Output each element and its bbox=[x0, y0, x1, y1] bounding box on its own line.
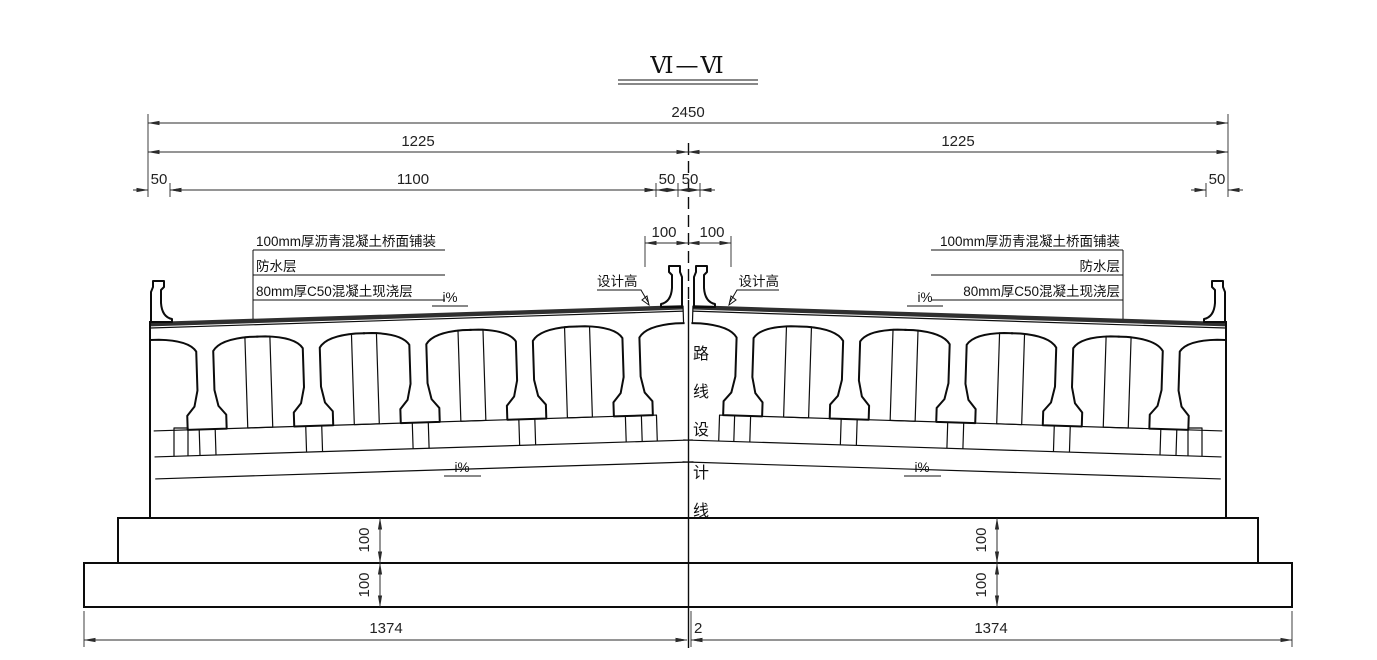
centerline-char-3: 设 bbox=[693, 421, 709, 439]
dim-median-right: 50 bbox=[682, 171, 699, 188]
label-waterproof-right: 防水层 bbox=[1080, 259, 1121, 274]
dim-step-upper-left: 100 bbox=[356, 527, 373, 552]
dim-median-left: 50 bbox=[659, 171, 676, 188]
dim-total-width: 2450 bbox=[671, 104, 704, 121]
dim-center-right: 100 bbox=[699, 224, 724, 241]
annotation-block-right: 100mm厚沥青混凝土桥面铺装 防水层 80mm厚C50混凝土现浇层 i% 设计… bbox=[729, 234, 1123, 476]
label-cap-slope-left: i% bbox=[454, 460, 469, 475]
label-cast-layer-left: 80mm厚C50混凝土现浇层 bbox=[256, 284, 413, 299]
annotation-block-left: 100mm厚沥青混凝土桥面铺装 防水层 80mm厚C50混凝土现浇层 i% 设计… bbox=[253, 234, 649, 476]
dim-footing-right: 1374 bbox=[974, 620, 1007, 637]
title-double-underline bbox=[618, 80, 758, 84]
dim-center-left: 100 bbox=[651, 224, 676, 241]
dim-footing-left: 1374 bbox=[369, 620, 402, 637]
label-waterproof-left: 防水层 bbox=[256, 259, 297, 274]
label-deck-slope-right: i% bbox=[917, 290, 932, 305]
label-design-height-left: 设计高 bbox=[597, 273, 638, 289]
dim-edge-left: 50 bbox=[151, 171, 168, 188]
dim-edge-right: 50 bbox=[1209, 171, 1226, 188]
open-arrow-right bbox=[729, 296, 736, 305]
label-pavement-left: 100mm厚沥青混凝土桥面铺装 bbox=[256, 234, 436, 249]
label-cap-slope-right: i% bbox=[914, 460, 929, 475]
centerline-char-4: 计 bbox=[693, 464, 709, 482]
design-height-leader-left bbox=[597, 290, 648, 302]
dim-step-lower-right: 100 bbox=[973, 572, 990, 597]
open-arrow-left bbox=[642, 296, 649, 305]
median-left-parapet bbox=[661, 266, 682, 307]
centerline-char-2: 线 bbox=[693, 383, 709, 401]
centerline-char-1: 路 bbox=[693, 345, 709, 363]
median-right-parapet bbox=[694, 266, 715, 307]
dim-half-left: 1225 bbox=[401, 133, 434, 150]
centerline-char-5: 线 bbox=[693, 502, 709, 520]
label-pavement-right: 100mm厚沥青混凝土桥面铺装 bbox=[940, 234, 1120, 249]
label-design-height-right: 设计高 bbox=[739, 273, 780, 289]
right-edge-parapet bbox=[1204, 281, 1225, 322]
dim-roadway: 1100 bbox=[397, 171, 429, 188]
label-deck-slope-left: i% bbox=[442, 290, 457, 305]
left-edge-parapet bbox=[151, 281, 172, 322]
dim-step-lower-left: 100 bbox=[356, 572, 373, 597]
dim-step-upper-right: 100 bbox=[973, 527, 990, 552]
drawing-sheet: Ⅵ—Ⅵ 路 线 设 计 线 2450 1225 1225 bbox=[0, 0, 1377, 660]
right-half bbox=[683, 305, 1226, 518]
bridge-cross-section-drawing: Ⅵ—Ⅵ 路 线 设 计 线 2450 1225 1225 bbox=[0, 0, 1377, 660]
route-design-line-label: 路 线 设 计 线 bbox=[693, 345, 709, 520]
label-cast-layer-right: 80mm厚C50混凝土现浇层 bbox=[963, 284, 1120, 299]
dim-half-right: 1225 bbox=[941, 133, 974, 150]
design-height-leader-right bbox=[730, 290, 779, 302]
left-half bbox=[150, 305, 693, 518]
section-title: Ⅵ—Ⅵ bbox=[649, 53, 725, 79]
dim-footing-center: 2 bbox=[694, 620, 702, 637]
